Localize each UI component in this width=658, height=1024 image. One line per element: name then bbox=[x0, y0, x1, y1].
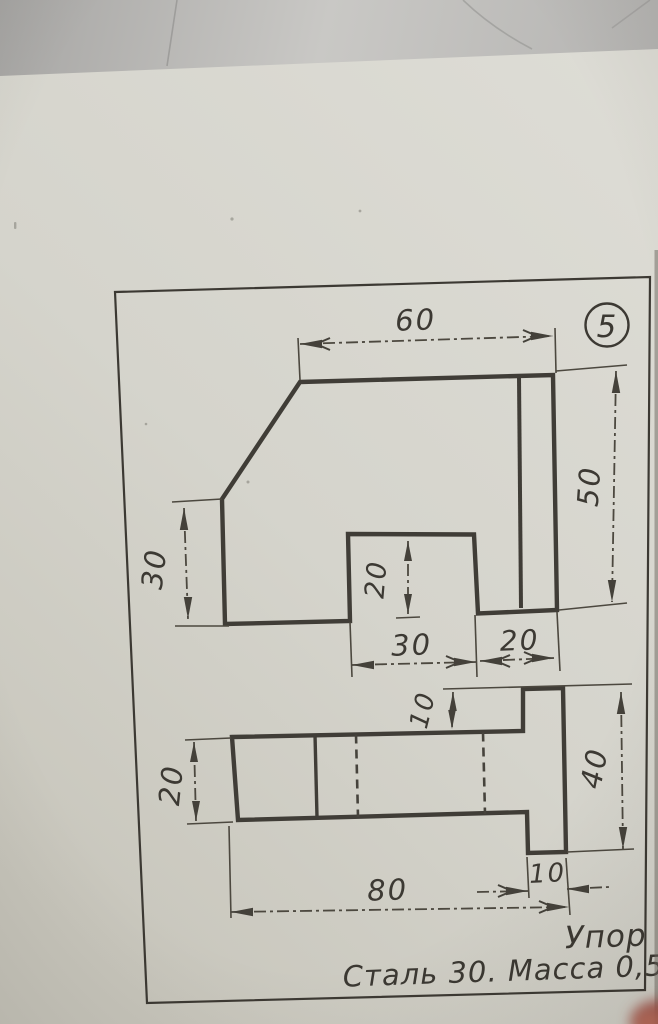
photo-vignette bbox=[0, 0, 658, 1024]
drawing-card-photo: 5 bbox=[0, 0, 658, 1024]
drawing-scene: 5 bbox=[0, 0, 658, 1024]
